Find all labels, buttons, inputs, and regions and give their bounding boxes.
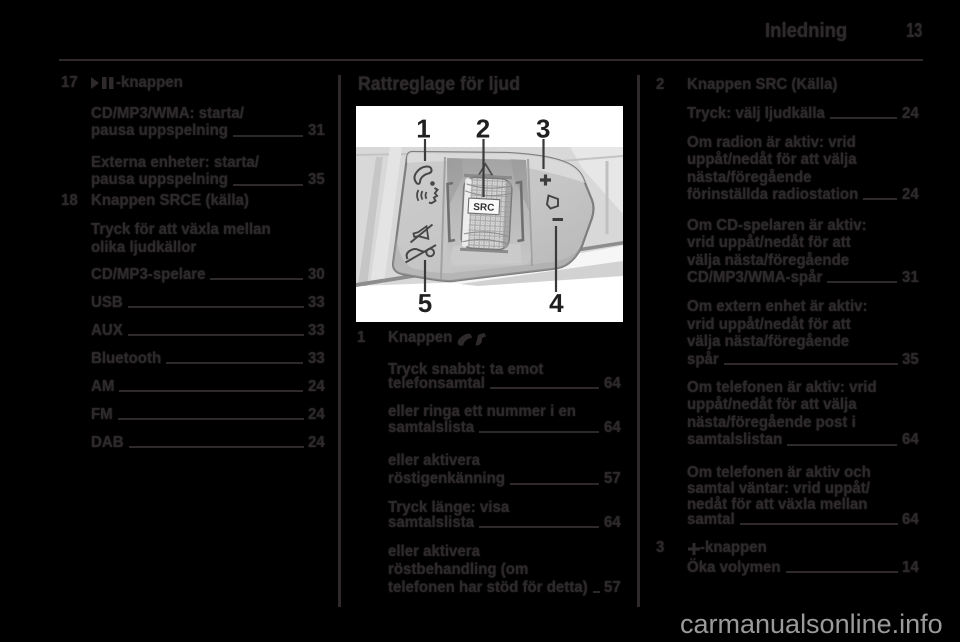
svg-text:3: 3 xyxy=(536,114,550,144)
svg-text:SRC: SRC xyxy=(473,202,495,214)
svg-text:2: 2 xyxy=(476,114,490,144)
svg-text:1: 1 xyxy=(416,114,430,144)
svg-text:5: 5 xyxy=(418,288,432,318)
svg-text:4: 4 xyxy=(549,288,564,318)
